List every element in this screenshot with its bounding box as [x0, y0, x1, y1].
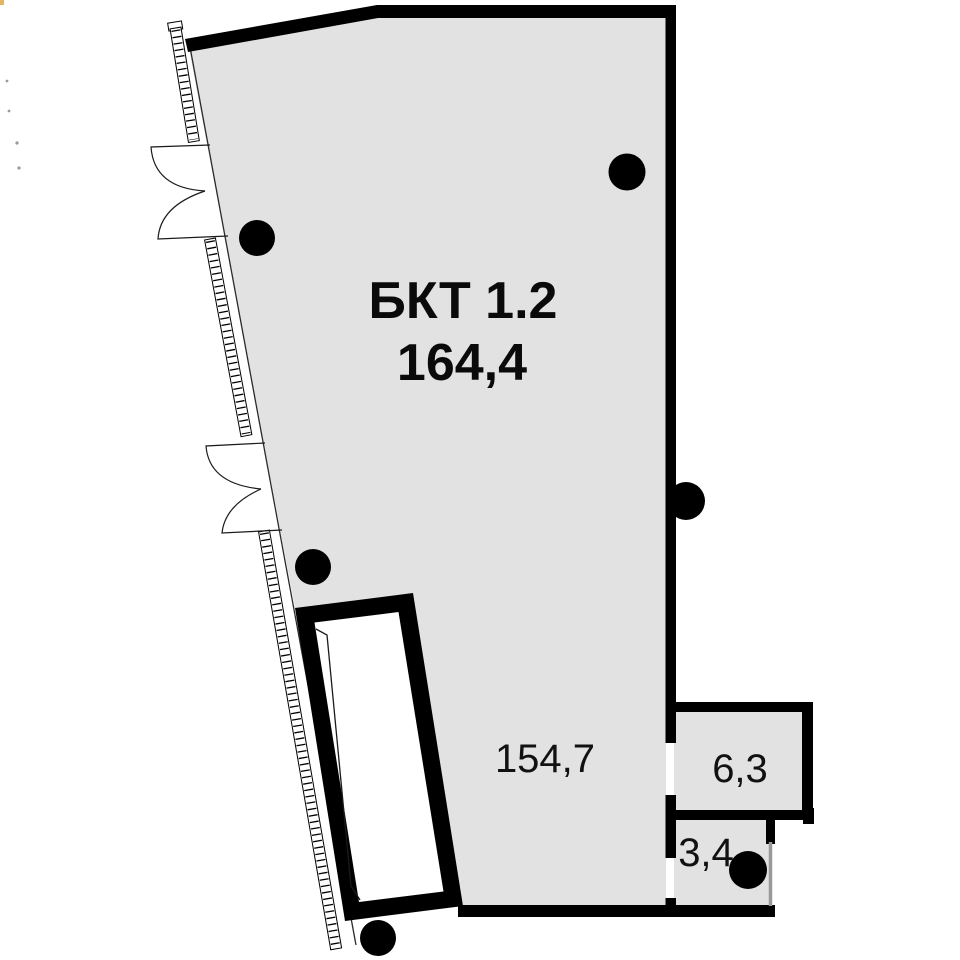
floor-plan-page: БКТ 1.2 164,4 154,7 6,3 3,4: [0, 0, 960, 960]
right-wall-upper: [666, 5, 677, 743]
right-wall-middle: [666, 795, 677, 858]
speck: [8, 110, 11, 113]
column-marker: [295, 549, 331, 585]
column-marker: [360, 920, 396, 956]
unit-area-label: 164,4: [397, 334, 527, 392]
bottom-wall: [458, 905, 775, 917]
speck: [15, 141, 18, 144]
speck: [17, 166, 20, 169]
room-6-3-right-wall: [802, 702, 813, 820]
column-marker: [239, 220, 275, 256]
room-6-3-wall-step: [803, 808, 814, 824]
room-6-3-bottom-wall: [674, 810, 813, 820]
column-marker: [667, 482, 705, 520]
column-marker: [729, 851, 767, 889]
corner-speck: [0, 0, 4, 5]
main-room-area-label: 154,7: [495, 737, 595, 781]
unit-name-label: БКТ 1.2: [369, 272, 558, 330]
room-3-4-right-wall-stub: [766, 816, 775, 844]
floor-plan-drawing: БКТ 1.2 164,4 154,7 6,3 3,4: [0, 0, 960, 960]
room-6-3-top-wall: [674, 702, 813, 712]
column-marker: [609, 154, 646, 191]
room-3-4-area-label: 3,4: [678, 831, 734, 875]
speck: [6, 80, 9, 83]
room-6-3-area-label: 6,3: [712, 747, 768, 791]
